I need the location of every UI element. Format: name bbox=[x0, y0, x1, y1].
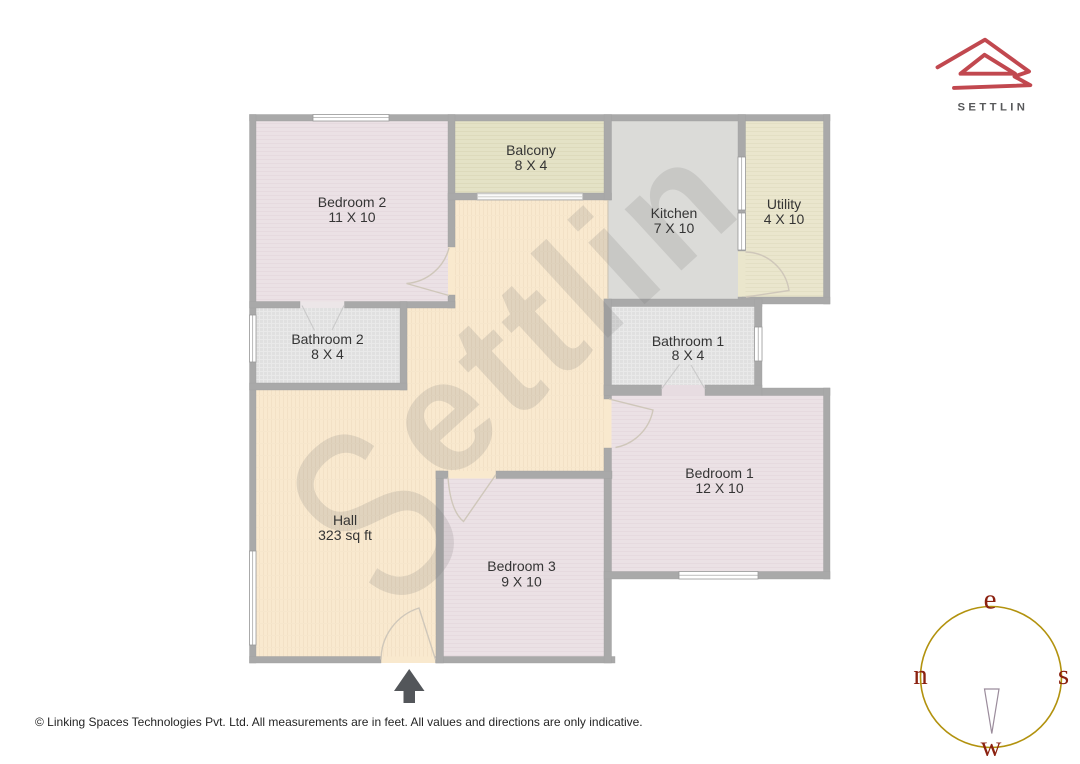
svg-text:w: w bbox=[981, 731, 1002, 763]
svg-text:Bedroom 1: Bedroom 1 bbox=[685, 465, 754, 481]
svg-text:4 X 10: 4 X 10 bbox=[764, 211, 805, 227]
svg-text:n: n bbox=[913, 659, 928, 691]
svg-text:323 sq ft: 323 sq ft bbox=[318, 527, 372, 543]
svg-text:Bedroom 2: Bedroom 2 bbox=[318, 194, 387, 210]
svg-text:Balcony: Balcony bbox=[506, 142, 556, 158]
svg-text:8 X 4: 8 X 4 bbox=[672, 347, 705, 363]
svg-text:8 X 4: 8 X 4 bbox=[515, 157, 548, 173]
svg-text:Utility: Utility bbox=[767, 196, 801, 212]
svg-text:SETTLIN: SETTLIN bbox=[958, 102, 1029, 114]
svg-text:© Linking Spaces Technologies: © Linking Spaces Technologies Pvt. Ltd. … bbox=[35, 715, 643, 729]
svg-text:s: s bbox=[1058, 659, 1069, 691]
svg-text:Kitchen: Kitchen bbox=[651, 205, 698, 221]
svg-text:Bedroom 3: Bedroom 3 bbox=[487, 558, 556, 574]
svg-text:8 X 4: 8 X 4 bbox=[311, 346, 344, 362]
svg-text:9 X 10: 9 X 10 bbox=[501, 574, 542, 590]
svg-text:e: e bbox=[984, 584, 997, 616]
svg-text:11 X 10: 11 X 10 bbox=[328, 209, 375, 225]
svg-text:Bathroom 2: Bathroom 2 bbox=[291, 331, 364, 347]
svg-text:Hall: Hall bbox=[333, 512, 357, 528]
svg-text:12 X 10: 12 X 10 bbox=[695, 480, 743, 496]
svg-text:7 X 10: 7 X 10 bbox=[654, 220, 695, 236]
